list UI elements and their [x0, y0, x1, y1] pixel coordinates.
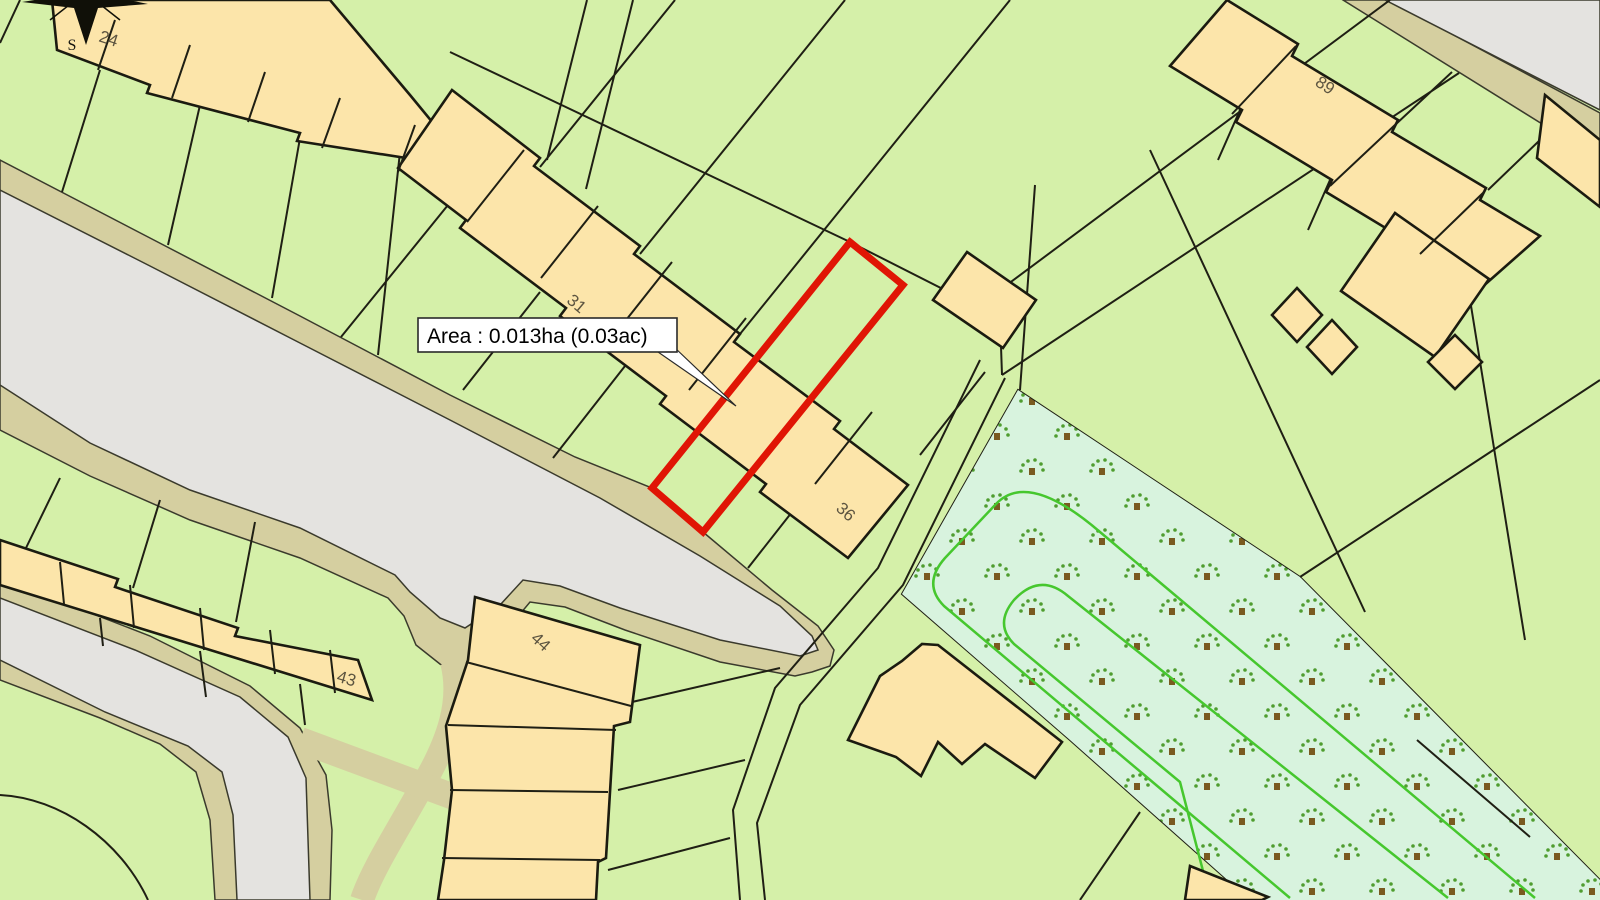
- compass-south-label: S: [68, 37, 77, 54]
- area-label: Area : 0.013ha (0.03ac): [427, 325, 648, 348]
- map-screenshot: 24 31 36 43 44 89 S Area : 0.013ha (0.03…: [0, 0, 1600, 900]
- cadastral-map-canvas[interactable]: 24 31 36 43 44 89 S Area : 0.013ha (0.03…: [0, 0, 1600, 900]
